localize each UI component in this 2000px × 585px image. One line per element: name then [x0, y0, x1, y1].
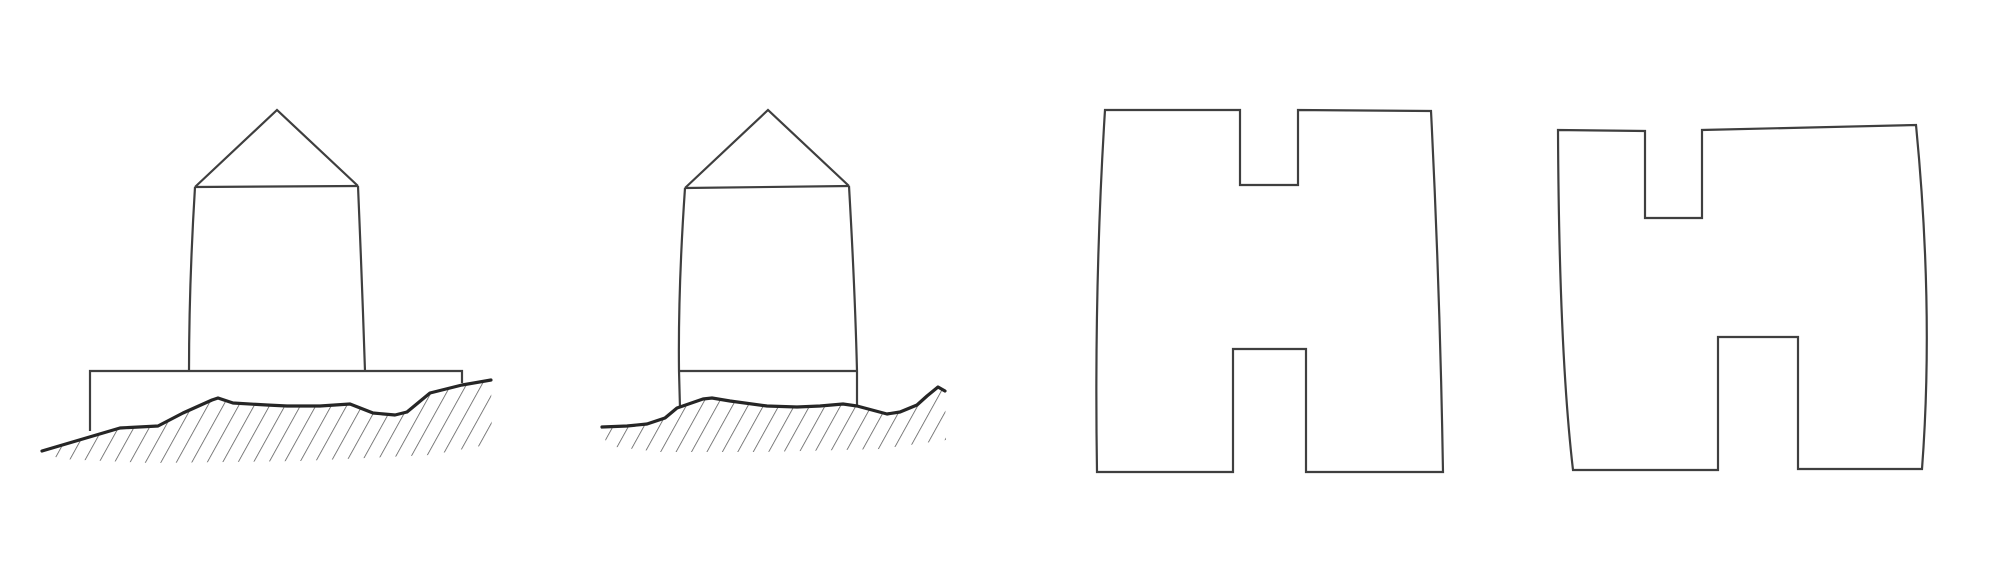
- h-shaped-block-sketch-right: [1558, 125, 1927, 470]
- wall-right: [849, 186, 857, 406]
- roof-outline: [685, 110, 849, 188]
- hut-on-plinth-sketch: [602, 110, 946, 452]
- block-outline: [1558, 125, 1927, 470]
- h-shaped-block-sketch-left: [1096, 110, 1443, 472]
- block-outline: [1096, 110, 1443, 472]
- wall-right: [358, 186, 365, 371]
- technical-sketch-canvas: [0, 0, 2000, 585]
- eaves-line: [685, 186, 849, 188]
- ground-hatch: [602, 387, 946, 452]
- eaves-line: [195, 186, 358, 187]
- roof-outline: [195, 110, 358, 187]
- ground-hatch: [42, 380, 492, 463]
- wall-left: [189, 187, 195, 372]
- hut-on-foundation-slab-sketch: [42, 110, 492, 463]
- wall-left: [679, 188, 685, 408]
- scanned-sketch-page: [0, 0, 2000, 585]
